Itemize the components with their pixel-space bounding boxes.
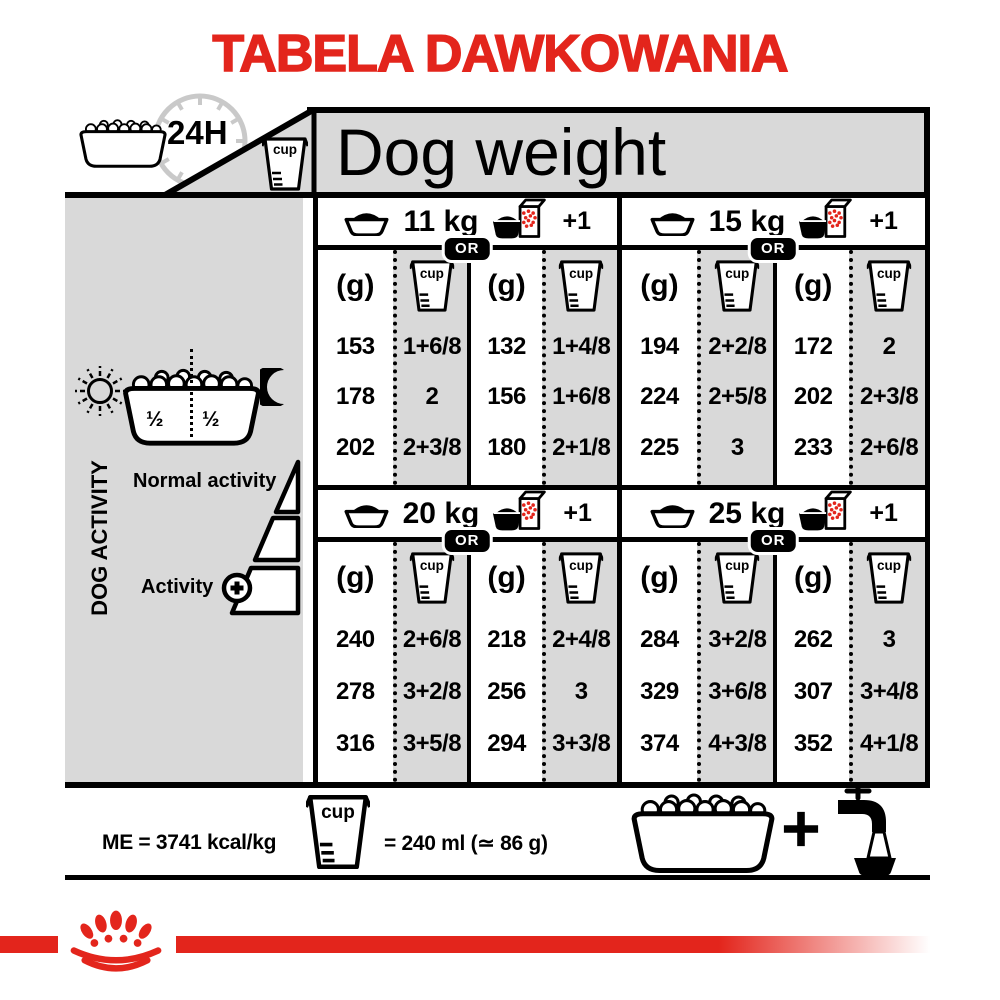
plus-circle-icon: [220, 571, 254, 605]
footer-bottom-line: [65, 875, 930, 880]
quadrant-15kg: 15 kg +1 OR (g) 194 224 225 cup: [622, 198, 926, 490]
cup-icon-label: cup: [262, 142, 308, 157]
dose-value: 178: [318, 372, 393, 422]
dose-value: 3+5/8: [397, 718, 468, 770]
dose-value: 2+3/8: [853, 372, 925, 422]
dose-value: 202: [777, 372, 849, 422]
dose-value: 172: [777, 322, 849, 372]
dose-value: 3+6/8: [701, 666, 773, 718]
cup-icon-label: cup: [866, 266, 912, 281]
dose-value: 225: [622, 423, 698, 473]
grams-column: (g) 284 329 374: [622, 542, 698, 782]
weight-header: 11 kg +1 OR: [318, 198, 617, 250]
grams-header: (g): [318, 542, 393, 614]
dose-value: 224: [622, 372, 698, 422]
grams-column: (g) 262 307 352: [773, 542, 849, 782]
or-badge: OR: [748, 235, 799, 263]
cup-header: cup: [546, 542, 617, 614]
page-title: TABELA DAWKOWANIA: [0, 24, 1000, 84]
cup-header: cup: [853, 250, 925, 322]
dose-value: 2+6/8: [853, 423, 925, 473]
bowl-bag-icon: [798, 490, 856, 537]
cup-column: cup 1+4/8 1+6/8 2+1/8: [542, 250, 617, 485]
dose-value: 218: [471, 614, 542, 666]
measuring-cup-icon: cup: [558, 551, 604, 605]
dose-value: 180: [471, 423, 542, 473]
cup-equivalence-text: = 240 ml (≃ 86 g): [384, 831, 548, 856]
half-right-label: ½: [202, 408, 220, 432]
weight-label: 15 kg: [709, 205, 786, 239]
plus-one-label: +1: [869, 207, 898, 236]
dose-value: 132: [471, 322, 542, 372]
grams-column: (g) 194 224 225: [622, 250, 698, 485]
bowl-split-line: [190, 349, 193, 444]
me-kcal-text: ME = 3741 kcal/kg: [102, 831, 276, 855]
dose-value: 278: [318, 666, 393, 718]
dose-value: 1+4/8: [546, 322, 617, 372]
dose-value: 4+1/8: [853, 718, 925, 770]
measuring-cup-icon: cup: [409, 259, 455, 313]
grams-column: (g) 132 156 180: [467, 250, 542, 485]
dog-activity-text: DOG ACTIVITY: [87, 460, 113, 616]
dose-value: 153: [318, 322, 393, 372]
dose-value: 3: [853, 614, 925, 666]
grams-column: (g) 218 256 294: [467, 542, 542, 782]
dose-value: 307: [777, 666, 849, 718]
cup-icon-label: cup: [714, 266, 760, 281]
grams-column: (g) 172 202 233: [773, 250, 849, 485]
or-label: OR: [761, 532, 786, 549]
or-label: OR: [455, 240, 480, 257]
weight-label: 20 kg: [403, 497, 480, 531]
measuring-cup-icon: cup: [714, 551, 760, 605]
cup-icon-label: cup: [409, 266, 455, 281]
dose-value: 3+4/8: [853, 666, 925, 718]
bowl-icon: [649, 207, 696, 236]
cup-column: cup 3+2/8 3+6/8 4+3/8: [697, 542, 773, 782]
dose-grid: (g) 153 178 202 cup 1+6/8 2 2+3/8: [318, 250, 617, 485]
cup-icon-label: cup: [306, 802, 370, 824]
plus-one-label: +1: [869, 499, 898, 528]
weight-label: 11 kg: [403, 205, 478, 239]
dose-grid: (g) 240 278 316 cup 2+6/8 3+2/8 3+5/8: [318, 542, 617, 782]
dose-value: 329: [622, 666, 698, 718]
dose-value: 262: [777, 614, 849, 666]
measuring-cup-icon: cup: [866, 259, 912, 313]
measuring-cup-icon: cup: [558, 259, 604, 313]
dog-activity-label: DOG ACTIVITY: [60, 455, 140, 620]
dose-value: 3+2/8: [397, 666, 468, 718]
dose-value: 2: [397, 372, 468, 422]
cup-header: cup: [546, 250, 617, 322]
dose-value: 194: [622, 322, 698, 372]
weight-header: 20 kg +1 OR: [318, 490, 617, 542]
brand-stripe-left: [0, 936, 58, 953]
dose-value: 1+6/8: [546, 372, 617, 422]
cup-column: cup 2+4/8 3 3+3/8: [542, 542, 617, 782]
plus-icon: [782, 810, 820, 848]
cup-column: cup 2 2+3/8 2+6/8: [849, 250, 925, 485]
dose-value: 256: [471, 666, 542, 718]
dose-value: 233: [777, 423, 849, 473]
dose-value: 3: [701, 423, 773, 473]
cup-icon-label: cup: [558, 266, 604, 281]
plus-one-label: +1: [563, 207, 592, 236]
cup-icon-label: cup: [409, 558, 455, 573]
dose-value: 2: [853, 322, 925, 372]
cup-header: cup: [853, 542, 925, 614]
dose-grid: (g) 194 224 225 cup 2+2/8 2+5/8 3: [622, 250, 926, 485]
grams-column: (g) 153 178 202: [318, 250, 393, 485]
dose-value: 2+5/8: [701, 372, 773, 422]
weight-header: 15 kg +1 OR: [622, 198, 926, 250]
weight-header: 25 kg +1 OR: [622, 490, 926, 542]
dose-grid: (g) 284 329 374 cup 3+2/8 3+6/8 4+3/8: [622, 542, 926, 782]
dose-value: 294: [471, 718, 542, 770]
or-badge: OR: [442, 235, 493, 263]
dog-weight-title: Dog weight: [336, 114, 666, 190]
measuring-cup-icon: cup: [866, 551, 912, 605]
dose-value: 240: [318, 614, 393, 666]
dose-value: 156: [471, 372, 542, 422]
bowl-icon: [343, 499, 390, 528]
bowl-icon: [343, 207, 390, 236]
quadrant-25kg: 25 kg +1 OR (g) 284 329 374 cup: [622, 490, 926, 782]
dose-value: 2+3/8: [397, 423, 468, 473]
measuring-cup-icon: cup: [714, 259, 760, 313]
dosage-table: 11 kg +1 OR (g) 153 178 202 cup: [313, 198, 930, 782]
cup-column: cup 3 3+4/8 4+1/8: [849, 542, 925, 782]
dose-value: 316: [318, 718, 393, 770]
weight-label: 25 kg: [709, 497, 786, 531]
dose-value: 2+6/8: [397, 614, 468, 666]
grams-header: (g): [622, 250, 698, 322]
cup-icon-label: cup: [714, 558, 760, 573]
dose-value: 202: [318, 423, 393, 473]
or-badge: OR: [442, 527, 493, 555]
water-tap-icon: [818, 784, 898, 880]
crown-logo: [62, 910, 170, 976]
dose-value: 3: [546, 666, 617, 718]
dosage-infographic: TABELA DAWKOWANIA 24H cup Dog weight: [0, 0, 1000, 1000]
cup-icon-label: cup: [866, 558, 912, 573]
dose-value: 374: [622, 718, 698, 770]
grams-column: (g) 240 278 316: [318, 542, 393, 782]
food-bowl-icon: [626, 790, 780, 878]
dose-value: 3+2/8: [701, 614, 773, 666]
or-label: OR: [761, 240, 786, 257]
dose-value: 3+3/8: [546, 718, 617, 770]
dose-value: 2+1/8: [546, 423, 617, 473]
bowl-bag-icon: [492, 198, 550, 245]
cup-icon-label: cup: [558, 558, 604, 573]
bowl-bag-icon: [492, 490, 550, 537]
dose-value: 1+6/8: [397, 322, 468, 372]
activity-label: Activity: [141, 576, 213, 599]
dose-value: 352: [777, 718, 849, 770]
footer-top-line: [65, 782, 930, 788]
half-left-label: ½: [146, 408, 164, 432]
dose-value: 2+4/8: [546, 614, 617, 666]
dose-value: 284: [622, 614, 698, 666]
cup-column: cup 2+2/8 2+5/8 3: [697, 250, 773, 485]
measuring-cup-icon: cup: [409, 551, 455, 605]
bowl-bag-icon: [798, 198, 856, 245]
dose-value: 2+2/8: [701, 322, 773, 372]
bowl-icon: [649, 499, 696, 528]
moon-icon: [260, 368, 294, 406]
cup-column: cup 1+6/8 2 2+3/8: [393, 250, 468, 485]
cup-column: cup 2+6/8 3+2/8 3+5/8: [393, 542, 468, 782]
or-label: OR: [455, 532, 480, 549]
dose-value: 4+3/8: [701, 718, 773, 770]
quadrant-20kg: 20 kg +1 OR (g) 240 278 316 cup: [318, 490, 622, 782]
plus-one-label: +1: [563, 499, 592, 528]
quadrant-11kg: 11 kg +1 OR (g) 153 178 202 cup: [318, 198, 622, 490]
grams-header: (g): [622, 542, 698, 614]
brand-stripe-right: [176, 936, 930, 953]
grams-header: (g): [318, 250, 393, 322]
or-badge: OR: [748, 527, 799, 555]
